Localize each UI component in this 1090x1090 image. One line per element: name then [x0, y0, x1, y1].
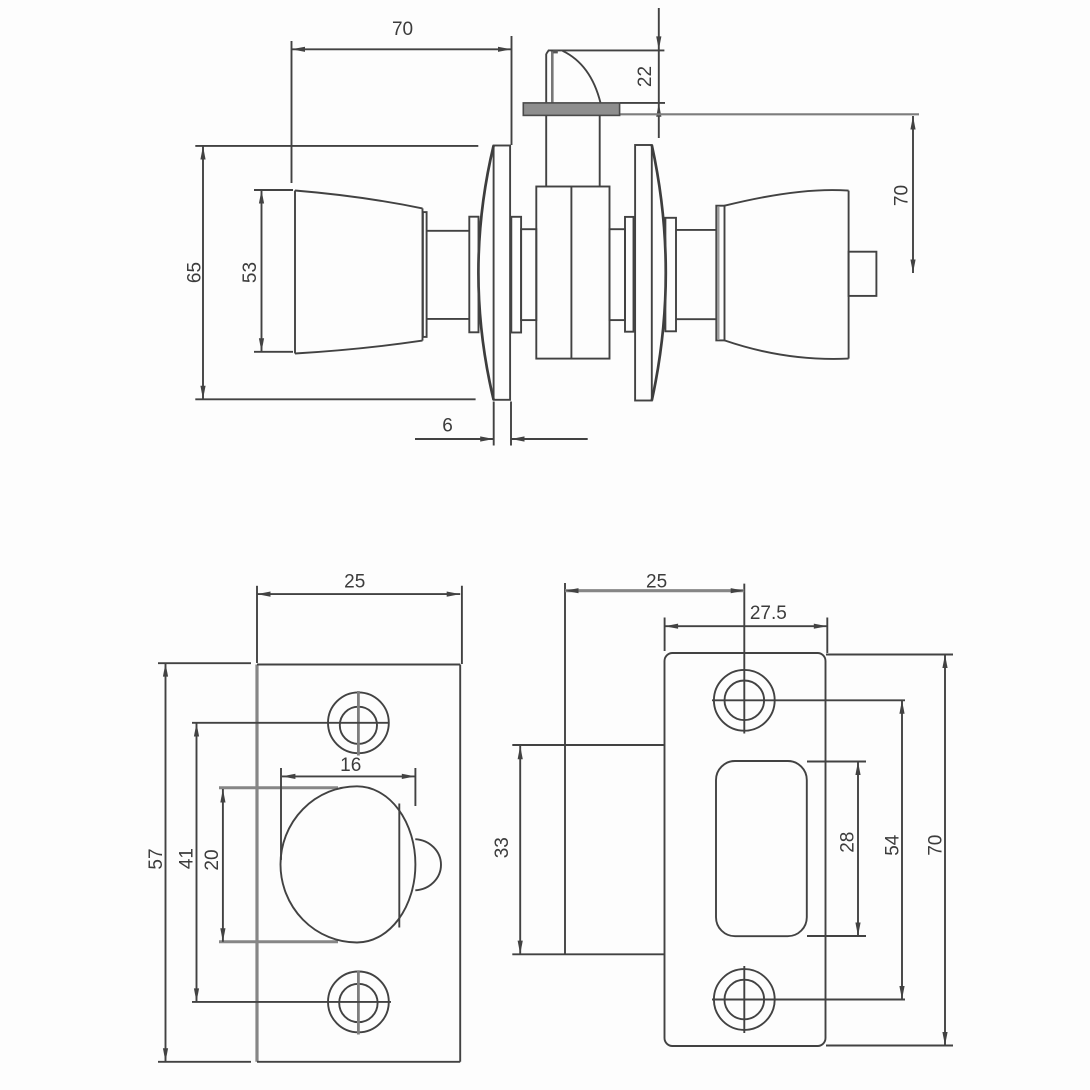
svg-text:28: 28: [838, 832, 859, 853]
svg-text:25: 25: [646, 572, 667, 593]
svg-text:54: 54: [883, 834, 904, 856]
svg-text:70: 70: [925, 835, 946, 856]
svg-text:25: 25: [344, 572, 365, 593]
svg-text:53: 53: [240, 262, 261, 283]
svg-text:33: 33: [492, 837, 513, 858]
svg-text:22: 22: [635, 66, 656, 87]
svg-text:41: 41: [176, 848, 197, 869]
svg-text:16: 16: [340, 755, 361, 776]
svg-text:70: 70: [891, 185, 912, 206]
svg-text:57: 57: [146, 848, 167, 869]
svg-text:6: 6: [442, 416, 453, 437]
svg-text:27.5: 27.5: [750, 603, 787, 624]
svg-text:70: 70: [392, 19, 413, 40]
svg-text:65: 65: [184, 262, 205, 283]
svg-text:20: 20: [202, 849, 223, 870]
